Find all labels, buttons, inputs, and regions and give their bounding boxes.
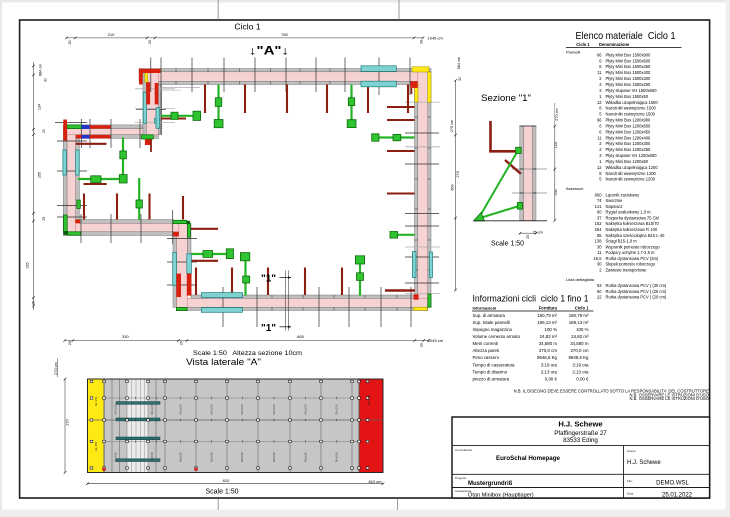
svg-text:Wkładka uzupełniająca 1200: Wkładka uzupełniająca 1200 (606, 165, 659, 170)
svg-text:Lista dettagliata: Lista dettagliata (566, 277, 595, 282)
svg-text:30: 30 (597, 262, 602, 267)
svg-text:120: 120 (554, 142, 558, 148)
svg-text:25 cm: 25 cm (533, 231, 543, 235)
svg-text:Ciclo 1: Ciclo 1 (575, 306, 589, 311)
svg-text:210: 210 (108, 32, 115, 37)
svg-text:90x120: 90x120 (150, 404, 154, 414)
svg-text:↓"A"↓: ↓"A"↓ (249, 46, 289, 58)
svg-text:Płyty Mini Box 1200x400: Płyty Mini Box 1200x400 (606, 135, 652, 140)
svg-text:Fornitura: Fornitura (539, 306, 558, 311)
svg-text:189,13 m²: 189,13 m² (569, 320, 589, 325)
svg-text:Elenco materiale Ciclo 1: Elenco materiale Ciclo 1 (576, 31, 676, 42)
svg-text:90x120: 90x120 (272, 404, 276, 414)
svg-text:182: 182 (595, 221, 603, 226)
svg-text:Płyty Mini Box 1200x450: Płyty Mini Box 1200x450 (606, 129, 652, 134)
svg-text:Płyty Mini Box 1500x600: Płyty Mini Box 1500x600 (606, 58, 652, 63)
svg-text:Narożniki zewnętrzne 1200: Narożniki zewnętrzne 1200 (606, 177, 656, 182)
svg-text:11: 11 (597, 135, 602, 140)
svg-text:30: 30 (44, 78, 48, 82)
svg-text:Otan Minibox (Hauptlager): Otan Minibox (Hauptlager) (468, 493, 534, 499)
svg-text:Sworznie: Sworznie (606, 198, 624, 203)
svg-text:Impegno magazzino: Impegno magazzino (473, 327, 513, 332)
svg-text:2:13 ora: 2:13 ora (541, 369, 558, 374)
svg-text:90x150: 90x150 (179, 452, 183, 462)
svg-text:18,5: 18,5 (594, 256, 603, 261)
svg-text:9948,6 Kg: 9948,6 Kg (537, 355, 558, 360)
svg-text:Scale 1:50: Scale 1:50 (205, 488, 238, 495)
svg-text:270 cm: 270 cm (555, 108, 559, 120)
svg-text:Narożniki wewnętrzne 1200: Narożniki wewnętrzne 1200 (606, 171, 657, 176)
svg-text:Vista laterale "A": Vista laterale "A" (186, 357, 261, 367)
svg-text:H.J. Schewe: H.J. Schewe (627, 460, 661, 466)
svg-text:3:19 ora: 3:19 ora (572, 362, 589, 367)
svg-text:30: 30 (420, 40, 424, 44)
svg-text:810: 810 (223, 478, 230, 483)
svg-text:30: 30 (597, 244, 602, 249)
svg-text:Podpory uchylne 1,7-2,5 m: Podpory uchylne 1,7-2,5 m (606, 250, 656, 255)
svg-text:Płyty Mini Box 1500x300: Płyty Mini Box 1500x300 (606, 76, 652, 81)
svg-text:90x150: 90x150 (272, 452, 276, 462)
svg-text:"1": "1" (261, 274, 276, 285)
svg-text:11: 11 (597, 70, 602, 75)
svg-text:File:: File: (627, 479, 633, 483)
svg-text:Assessori: Assessori (566, 186, 583, 191)
svg-text:53: 53 (597, 283, 602, 288)
svg-text:Nakrętka kołnierzowa B15/70: Nakrętka kołnierzowa B15/70 (606, 221, 660, 226)
svg-text:264: 264 (595, 227, 603, 232)
svg-text:0,00 €: 0,00 € (576, 376, 589, 381)
svg-text:90x150: 90x150 (210, 452, 214, 462)
svg-text:270 cm: 270 cm (54, 362, 58, 374)
svg-text:Ciclo 1: Ciclo 1 (234, 22, 260, 32)
svg-text:Narożniki wewnętrzne 1500: Narożniki wewnętrzne 1500 (606, 106, 657, 111)
svg-text:DEMO.WSL: DEMO.WSL (656, 481, 689, 487)
svg-text:Zawiesie transportowe: Zawiesie transportowe (606, 267, 648, 272)
svg-text:Sup. di armatura: Sup. di armatura (473, 313, 506, 318)
svg-text:Scale 1:50 Altezza sezione 1: Scale 1:50 Altezza sezione 10cm (193, 350, 303, 357)
svg-text:AE 150: AE 150 (94, 441, 98, 451)
svg-text:90x120: 90x120 (335, 404, 339, 414)
svg-text:270,0 cm: 270,0 cm (539, 348, 557, 353)
svg-text:Volume cemento armato: Volume cemento armato (473, 334, 521, 339)
svg-text:22: 22 (597, 295, 602, 300)
svg-text:Ściągi B15-1,0 m: Ściągi B15-1,0 m (606, 239, 638, 244)
svg-text:Peso cassero: Peso cassero (473, 355, 500, 360)
svg-text:Rurka dystansowa PCV (2m): Rurka dystansowa PCV (2m) (606, 256, 659, 261)
svg-text:Scale 1:50: Scale 1:50 (491, 241, 524, 248)
svg-text:H.J. Schewe: H.J. Schewe (558, 420, 602, 429)
svg-text:180,79 m²: 180,79 m² (537, 313, 557, 318)
svg-text:60: 60 (597, 210, 602, 215)
svg-text:Rozporka dystansowa 75 CM: Rozporka dystansowa 75 CM (606, 215, 660, 220)
svg-text:270,0 cm: 270,0 cm (570, 348, 588, 353)
svg-text:Płyty Mini Box 1200x900: Płyty Mini Box 1200x900 (606, 118, 652, 123)
svg-text:330: 330 (122, 334, 129, 339)
svg-text:N.B. OSSERVARE LE ISTRUZIONI D: N.B. OSSERVARE LE ISTRUZIONI D'USO! (630, 396, 710, 401)
svg-text:1045 cm: 1045 cm (428, 338, 444, 343)
svg-text:90x150: 90x150 (304, 452, 308, 462)
svg-text:810 cm: 810 cm (369, 479, 383, 484)
svg-text:90x150: 90x150 (335, 452, 339, 462)
svg-text:20: 20 (42, 129, 46, 133)
svg-text:Wkładka uzupełniająca 1500: Wkładka uzupełniająca 1500 (606, 100, 659, 105)
svg-text:37: 37 (597, 215, 602, 220)
svg-text:Informazioni cicli ciclo 1 fi: Informazioni cicli ciclo 1 fino 1 (473, 294, 589, 304)
svg-text:684 cm: 684 cm (457, 57, 461, 69)
svg-text:Mustergrundriß: Mustergrundriß (468, 481, 513, 487)
svg-text:90x120: 90x120 (114, 404, 118, 414)
svg-text:Informazioni: Informazioni (473, 306, 497, 311)
svg-text:12: 12 (597, 100, 602, 105)
svg-text:Płyty Mini Box 1500x900: Płyty Mini Box 1500x900 (606, 52, 652, 57)
svg-text:138: 138 (595, 239, 603, 244)
svg-text:Nakrętka kołnierzowa Fi 100: Nakrętka kołnierzowa Fi 100 (606, 227, 658, 232)
svg-text:Pfaffingerstraße 27: Pfaffingerstraße 27 (554, 430, 607, 437)
svg-text:24,82 m³: 24,82 m³ (571, 334, 589, 339)
svg-text:90x120: 90x120 (304, 404, 308, 414)
svg-text:66: 66 (597, 52, 602, 57)
svg-text:90x150: 90x150 (114, 452, 118, 462)
svg-text:prezzo di armatura: prezzo di armatura (473, 376, 510, 381)
svg-text:Płyty Mini Box 1500x50: Płyty Mini Box 1500x50 (606, 94, 649, 99)
svg-text:Sezione "1": Sezione "1" (481, 93, 531, 103)
svg-text:Płyty Mini Box 1500x250: Płyty Mini Box 1500x250 (606, 82, 652, 87)
svg-text:3:19 ora: 3:19 ora (541, 362, 558, 367)
svg-text:Płyty Mini Box 1500x400: Płyty Mini Box 1500x400 (606, 70, 652, 75)
svg-text:141: 141 (595, 204, 603, 209)
svg-text:30: 30 (420, 343, 424, 347)
svg-text:83533 Eding: 83533 Eding (563, 437, 598, 444)
svg-text:Płyty Mini Box 1200x50: Płyty Mini Box 1200x50 (606, 159, 649, 164)
svg-text:Progetto: Progetto (455, 476, 467, 480)
svg-text:Płyty słupowe VH 1200x600: Płyty słupowe VH 1200x600 (606, 153, 658, 158)
svg-text:Pannelli: Pannelli (566, 49, 580, 54)
svg-text:Płyty Mini Box 1500x450: Płyty Mini Box 1500x450 (606, 64, 652, 69)
svg-text:11: 11 (597, 250, 602, 255)
svg-text:Autore: Autore (627, 449, 636, 453)
svg-text:Altezza pareti: Altezza pareti (473, 348, 500, 353)
svg-text:Ciclo 1: Ciclo 1 (576, 42, 590, 47)
svg-text:684 cm: 684 cm (39, 64, 43, 76)
svg-text:Łącznik zaciskowy: Łącznik zaciskowy (606, 192, 641, 197)
svg-text:Rurka dystansowa PCV ( (25 cm): Rurka dystansowa PCV ( (25 cm) (606, 289, 667, 294)
svg-text:25: 25 (31, 301, 35, 305)
svg-text:255: 255 (37, 172, 41, 178)
svg-text:90x120: 90x120 (240, 404, 244, 414)
svg-text:660: 660 (595, 192, 603, 197)
svg-text:100 %: 100 % (576, 327, 589, 332)
svg-text:Denominazione: Denominazione (599, 42, 630, 47)
svg-text:Rurka dystansowa PCV ( (30 cm): Rurka dystansowa PCV ( (30 cm) (606, 283, 667, 288)
svg-text:270: 270 (65, 419, 69, 425)
svg-text:609: 609 (450, 184, 454, 190)
svg-text:Płyty Mini Box 1200x250: Płyty Mini Box 1200x250 (606, 147, 652, 152)
svg-text:665: 665 (297, 334, 304, 339)
svg-text:Sup. totale pannelli: Sup. totale pannelli (473, 320, 510, 325)
svg-text:780: 780 (281, 32, 288, 37)
svg-text:Słupek pomostu roboczego: Słupek pomostu roboczego (606, 262, 656, 267)
svg-text:0,00 €: 0,00 € (545, 376, 558, 381)
svg-text:90x120: 90x120 (367, 395, 371, 405)
svg-text:Narożniki zewnętrzne 1500: Narożniki zewnętrzne 1500 (606, 112, 656, 117)
svg-text:Rurka dystansowa PCV ( (20 cm): Rurka dystansowa PCV ( (20 cm) (606, 295, 667, 300)
svg-text:12: 12 (597, 165, 602, 170)
svg-text:Płyty Mini Box 1200x300: Płyty Mini Box 1200x300 (606, 141, 652, 146)
svg-text:20: 20 (180, 341, 184, 345)
svg-text:85: 85 (597, 233, 602, 238)
svg-text:90x150: 90x150 (150, 452, 154, 462)
svg-text:20: 20 (148, 40, 152, 44)
svg-text:30: 30 (458, 77, 462, 81)
svg-text:150: 150 (554, 189, 558, 195)
svg-text:189,13 m²: 189,13 m² (537, 320, 557, 325)
svg-text:100 %: 100 % (545, 327, 558, 332)
svg-text:AE 150: AE 150 (94, 396, 98, 406)
svg-text:180,79 m²: 180,79 m² (569, 313, 589, 318)
svg-text:195: 195 (26, 262, 30, 268)
svg-text:Tempo di casseratura: Tempo di casseratura (473, 362, 516, 367)
svg-text:Data: Data (627, 492, 634, 496)
svg-text:Napinacz: Napinacz (606, 204, 623, 209)
svg-text:25.01.2022: 25.01.2022 (662, 492, 693, 498)
svg-text:Nakrętka sześciokątna B15 L-40: Nakrętka sześciokątna B15 L-40 (606, 233, 666, 238)
svg-text:25: 25 (42, 217, 46, 221)
svg-text:34,580 m: 34,580 m (539, 341, 558, 346)
svg-text:Wspornik pomostu roboczego: Wspornik pomostu roboczego (606, 244, 661, 249)
svg-text:34,580 m: 34,580 m (570, 341, 589, 346)
svg-text:74: 74 (597, 198, 602, 203)
svg-text:25: 25 (526, 235, 530, 239)
svg-text:Committente: Committente (455, 448, 472, 452)
svg-text:20: 20 (68, 41, 72, 45)
svg-text:60: 60 (597, 289, 602, 294)
svg-text:90x120: 90x120 (179, 404, 183, 414)
svg-text:270: 270 (456, 171, 460, 177)
svg-text:90x150: 90x150 (240, 452, 244, 462)
svg-text:2:13 ora: 2:13 ora (572, 369, 589, 374)
svg-text:Metri correnti: Metri correnti (473, 341, 499, 346)
svg-text:Płyty Mini Box 1200x600: Płyty Mini Box 1200x600 (606, 123, 652, 128)
svg-text:90x120: 90x120 (210, 404, 214, 414)
svg-text:Płyty słupowe VH 1500x600: Płyty słupowe VH 1500x600 (606, 88, 658, 93)
svg-text:1045 cm: 1045 cm (428, 35, 444, 40)
svg-text:9948,6 Kg: 9948,6 Kg (568, 355, 589, 360)
svg-text:24,82 m³: 24,82 m³ (540, 334, 558, 339)
svg-text:"1": "1" (261, 323, 276, 334)
svg-text:270 cm: 270 cm (450, 120, 454, 132)
svg-text:Tempo di disarmo: Tempo di disarmo (473, 369, 508, 374)
svg-text:Rygiel szalunkowy 1,0 m: Rygiel szalunkowy 1,0 m (606, 210, 652, 215)
svg-text:66: 66 (597, 118, 602, 123)
svg-text:20: 20 (68, 341, 72, 345)
svg-text:134: 134 (37, 104, 41, 110)
svg-text:EuroSchal Homepage: EuroSchal Homepage (496, 455, 561, 462)
